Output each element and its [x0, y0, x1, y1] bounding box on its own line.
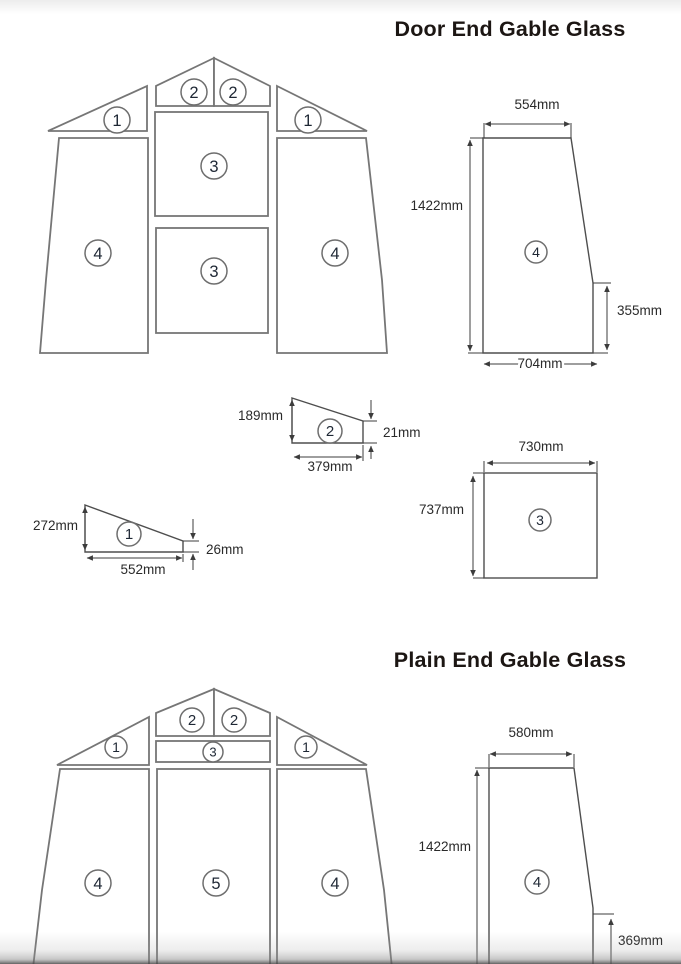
gable-glass-sheet: Door End Gable Glass 2 2 1 1 3 3 4 — [0, 0, 681, 964]
piece-number: 2 — [188, 712, 196, 729]
piece-number: 4 — [330, 245, 339, 263]
dim-height: 1422mm — [418, 839, 471, 854]
plain-end-title: Plain End Gable Glass — [394, 648, 626, 672]
piece-number: 3 — [209, 745, 216, 760]
door-end-piece-2-detail: 2 189mm 21mm 379mm — [238, 398, 421, 474]
piece-number: 2 — [326, 423, 334, 440]
piece-number: 1 — [302, 739, 310, 755]
door-end-title: Door End Gable Glass — [395, 17, 626, 41]
piece-number: 4 — [93, 245, 102, 263]
door-end-piece-1-detail: 1 272mm 26mm 552mm — [33, 505, 244, 577]
plain-end-gable-assembly: 2 2 1 1 3 4 5 4 — [33, 689, 392, 964]
piece-number: 3 — [209, 263, 218, 281]
piece-number: 1 — [112, 112, 121, 130]
plain-gable-piece-1-left — [57, 717, 149, 765]
dim-height: 1422mm — [410, 198, 463, 213]
dim-left-height: 189mm — [238, 408, 283, 423]
dim-width: 379mm — [307, 459, 352, 474]
piece-number: 2 — [189, 84, 198, 102]
door-gable-piece-1-right — [277, 86, 367, 131]
door-end-piece-3-detail: 3 730mm 737mm — [419, 439, 597, 578]
dim-width: 552mm — [120, 562, 165, 577]
piece-number: 2 — [230, 712, 238, 729]
top-fade — [0, 0, 681, 14]
piece-number: 1 — [303, 112, 312, 130]
door-end-gable-assembly: 2 2 1 1 3 3 4 4 — [40, 58, 387, 353]
plain-end-section: Plain End Gable Glass 2 2 1 1 3 4 5 — [33, 648, 663, 964]
piece-number: 4 — [532, 244, 540, 260]
piece-number: 1 — [125, 526, 133, 543]
piece-number: 4 — [533, 874, 541, 891]
dim-width: 730mm — [518, 439, 563, 454]
dim-height: 737mm — [419, 502, 464, 517]
plain-end-piece-4-detail: 4 580mm 1422mm 369mm — [418, 725, 663, 964]
dim-bottom-width: 704mm — [517, 356, 562, 371]
piece-number: 4 — [330, 875, 339, 893]
piece-number: 3 — [209, 158, 218, 176]
piece-number: 2 — [228, 84, 237, 102]
piece-number: 3 — [536, 512, 544, 528]
dim-right-height: 26mm — [206, 542, 244, 557]
dim-top-width: 580mm — [508, 725, 553, 740]
dim-top-width: 554mm — [514, 97, 559, 112]
dim-left-height: 272mm — [33, 518, 78, 533]
dim-right-height: 21mm — [383, 425, 421, 440]
dim-right-step: 355mm — [617, 303, 662, 318]
piece-number: 1 — [112, 739, 120, 755]
plain-gable-piece-1-right — [277, 717, 367, 765]
piece-number: 5 — [211, 875, 220, 893]
gable-glass-diagram: Door End Gable Glass 2 2 1 1 3 3 4 — [0, 0, 681, 964]
bottom-fade — [0, 932, 681, 964]
piece-number: 4 — [93, 875, 102, 893]
door-gable-piece-1-left — [48, 86, 147, 131]
door-end-piece-4-detail: 4 554mm 1422mm 355mm 704mm — [410, 97, 662, 371]
door-end-section: Door End Gable Glass 2 2 1 1 3 3 4 — [33, 17, 662, 578]
